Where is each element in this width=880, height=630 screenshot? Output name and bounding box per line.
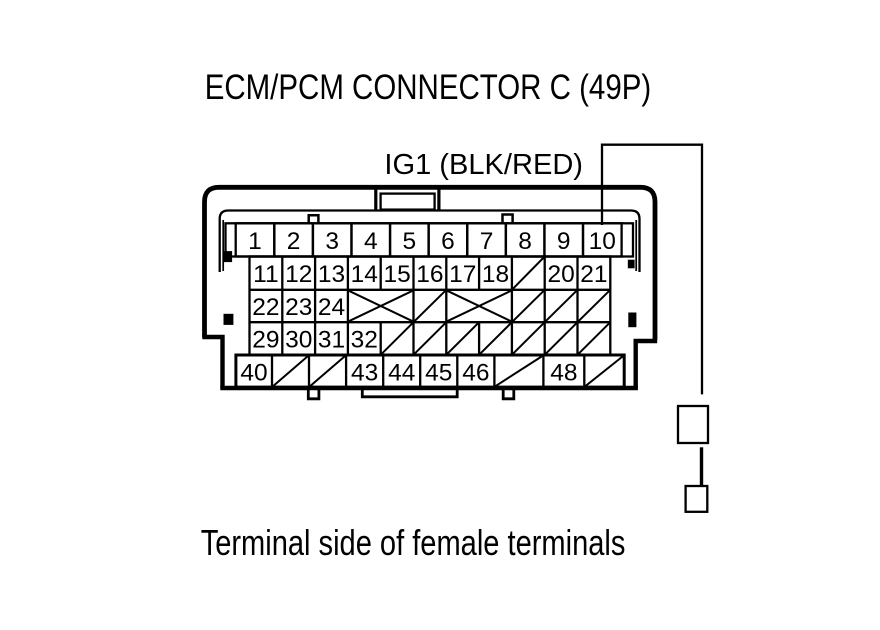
svg-text:13: 13 (318, 261, 345, 288)
svg-text:32: 32 (351, 327, 378, 354)
svg-text:14: 14 (351, 261, 378, 288)
svg-text:43: 43 (351, 359, 378, 386)
svg-text:21: 21 (580, 261, 607, 288)
svg-text:10: 10 (589, 228, 616, 255)
svg-text:44: 44 (388, 359, 415, 386)
svg-text:12: 12 (285, 261, 312, 288)
svg-text:22: 22 (252, 294, 279, 321)
svg-text:15: 15 (383, 261, 410, 288)
svg-text:20: 20 (547, 261, 574, 288)
svg-text:16: 16 (416, 261, 443, 288)
svg-text:24: 24 (318, 294, 345, 321)
svg-text:IG1 (BLK/RED): IG1 (BLK/RED) (384, 149, 583, 181)
svg-text:3: 3 (325, 228, 339, 255)
svg-text:45: 45 (425, 359, 452, 386)
svg-text:30: 30 (285, 327, 312, 354)
svg-text:23: 23 (285, 294, 312, 321)
svg-text:5: 5 (403, 228, 417, 255)
svg-text:17: 17 (449, 261, 476, 288)
svg-text:8: 8 (518, 228, 532, 255)
svg-text:29: 29 (252, 327, 279, 354)
svg-text:46: 46 (462, 359, 489, 386)
svg-text:ECM/PCM CONNECTOR C (49P): ECM/PCM CONNECTOR C (49P) (205, 68, 652, 107)
svg-text:7: 7 (480, 228, 494, 255)
svg-text:31: 31 (318, 327, 345, 354)
svg-text:2: 2 (287, 228, 301, 255)
svg-text:18: 18 (482, 261, 509, 288)
svg-text:48: 48 (550, 359, 577, 386)
svg-text:9: 9 (557, 228, 571, 255)
svg-text:6: 6 (441, 228, 455, 255)
svg-text:Terminal side of female termin: Terminal side of female terminals (201, 522, 626, 563)
svg-text:4: 4 (364, 228, 378, 255)
svg-text:40: 40 (240, 359, 267, 386)
svg-text:11: 11 (253, 261, 278, 288)
svg-text:1: 1 (248, 228, 262, 255)
